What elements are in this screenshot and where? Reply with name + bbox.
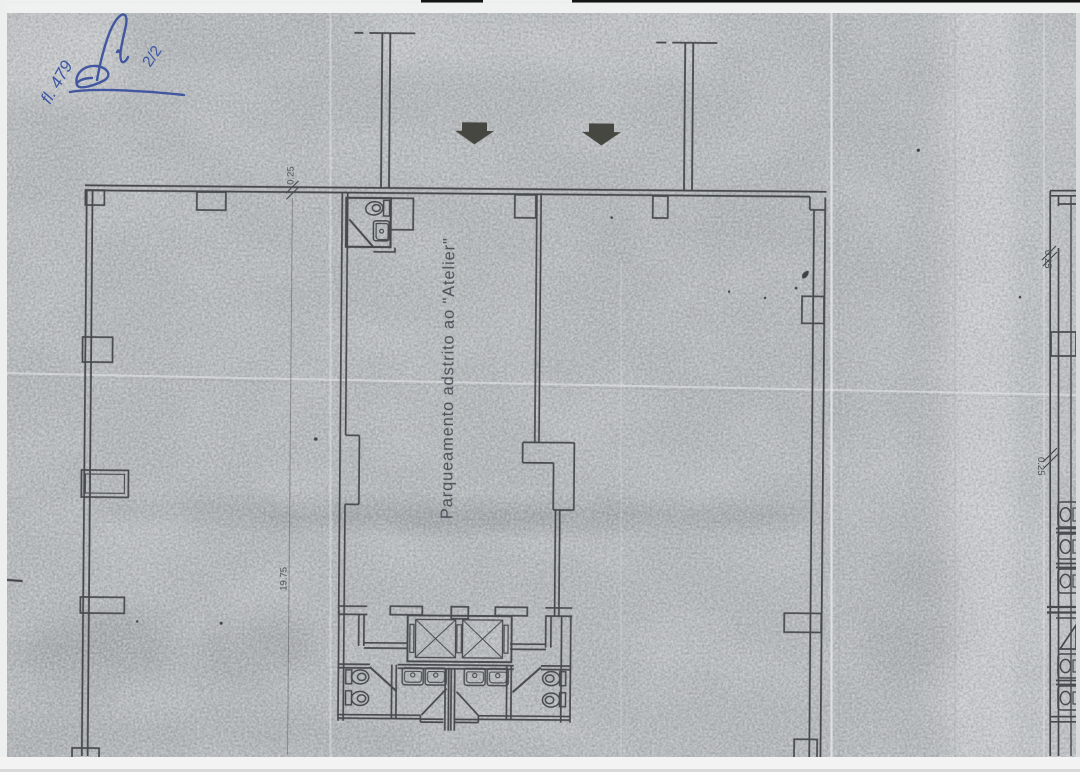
svg-text:0.25: 0.25 bbox=[286, 166, 297, 185]
svg-text:0.25: 0.25 bbox=[1042, 250, 1053, 269]
svg-text:Parqueamento adstrito ao "A: Parqueamento adstrito ao "Atelier" bbox=[438, 237, 458, 519]
svg-text:0.25: 0.25 bbox=[1035, 457, 1046, 476]
svg-text:19.75: 19.75 bbox=[278, 567, 289, 591]
